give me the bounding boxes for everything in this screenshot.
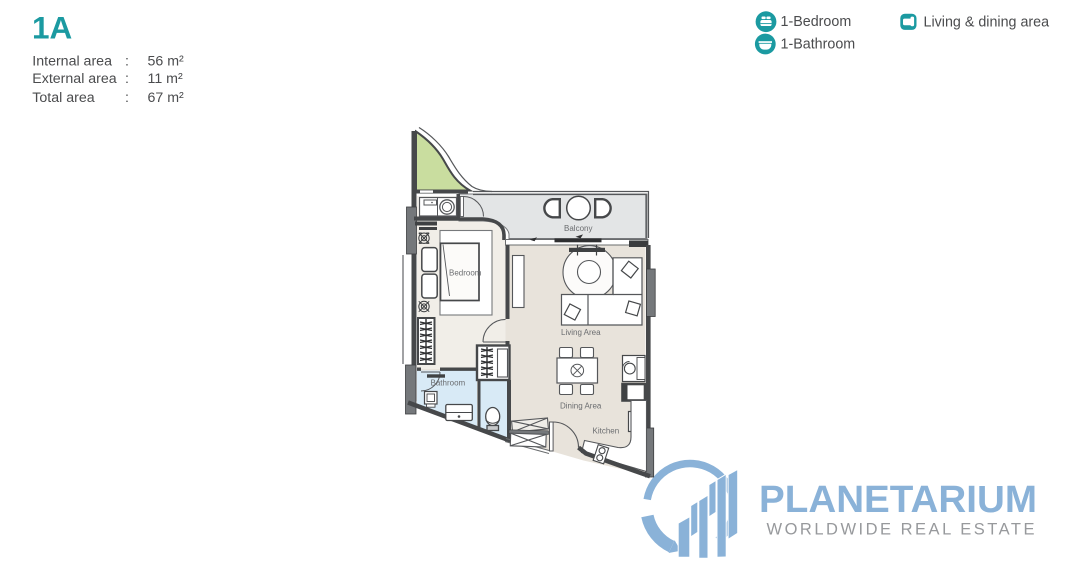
svg-text:Kitchen: Kitchen bbox=[593, 427, 620, 436]
svg-text::: : bbox=[125, 53, 129, 69]
svg-text::: : bbox=[125, 71, 129, 87]
svg-text:1A: 1A bbox=[32, 10, 72, 46]
svg-text:67 m²: 67 m² bbox=[148, 90, 185, 106]
svg-text:PLANETARIUM: PLANETARIUM bbox=[759, 479, 1037, 521]
svg-text:WORLDWIDE REAL ESTATE: WORLDWIDE REAL ESTATE bbox=[767, 521, 1035, 539]
svg-text:Dining Area: Dining Area bbox=[560, 402, 602, 411]
svg-text:1-Bedroom: 1-Bedroom bbox=[781, 14, 852, 30]
svg-text:Bedroom: Bedroom bbox=[449, 269, 482, 278]
svg-text::: : bbox=[125, 90, 129, 106]
svg-text:56 m²: 56 m² bbox=[148, 53, 185, 69]
svg-text:Living & dining area: Living & dining area bbox=[924, 14, 1050, 30]
svg-text:Internal area: Internal area bbox=[32, 53, 112, 69]
svg-text:11 m²: 11 m² bbox=[148, 71, 183, 87]
svg-text:Total area: Total area bbox=[32, 90, 94, 106]
svg-text:Balcony: Balcony bbox=[564, 224, 592, 233]
svg-text:Living Area: Living Area bbox=[561, 328, 601, 337]
svg-text:1-Bathroom: 1-Bathroom bbox=[781, 37, 856, 53]
svg-text:Bathroom: Bathroom bbox=[431, 379, 466, 388]
svg-text:External area: External area bbox=[32, 71, 116, 87]
